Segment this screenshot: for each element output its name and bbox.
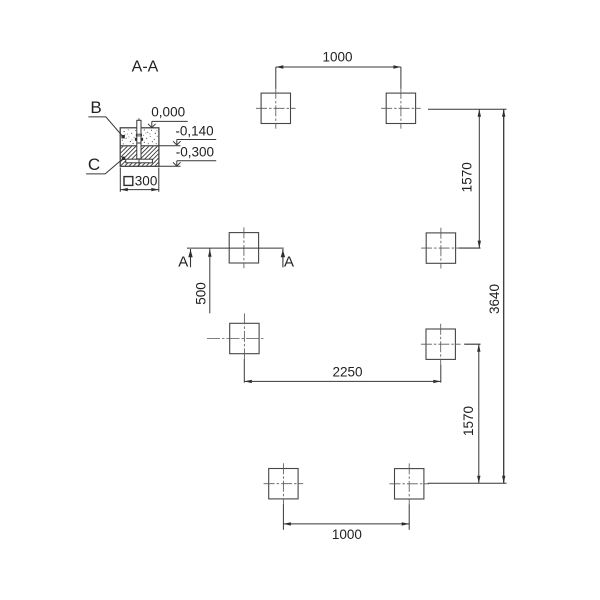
svg-text:3640: 3640 <box>487 284 502 314</box>
svg-text:500: 500 <box>193 282 208 305</box>
svg-text:0,000: 0,000 <box>151 105 185 120</box>
svg-text:1000: 1000 <box>332 527 362 542</box>
svg-text:1570: 1570 <box>461 406 476 436</box>
svg-text:A: A <box>178 253 188 270</box>
svg-text:1000: 1000 <box>322 50 352 65</box>
svg-text:A: A <box>284 253 294 270</box>
svg-text:1570: 1570 <box>459 162 474 192</box>
svg-text:C: C <box>88 155 100 174</box>
svg-text:A-A: A-A <box>132 59 159 76</box>
svg-text:-0,300: -0,300 <box>176 145 214 160</box>
svg-text:-0,140: -0,140 <box>175 124 213 139</box>
svg-text:B: B <box>90 98 101 117</box>
svg-text:300: 300 <box>135 174 158 189</box>
svg-text:2250: 2250 <box>332 365 362 380</box>
